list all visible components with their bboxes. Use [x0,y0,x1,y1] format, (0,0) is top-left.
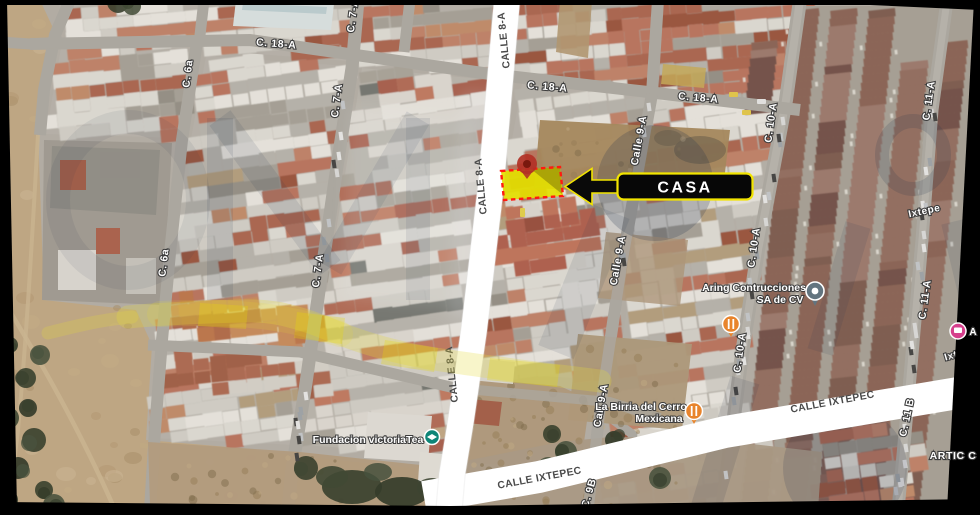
svg-text:SA de CV: SA de CV [757,294,804,306]
svg-text:Aring Contrucciones: Aring Contrucciones [702,282,806,294]
svg-text:CASA: CASA [657,180,712,197]
svg-text:Fundacion victoriaTea: Fundacion victoriaTea [313,434,424,446]
svg-text:ARTIC C: ARTIC C [930,450,977,462]
svg-text:Mexicana: Mexicana [635,413,682,425]
svg-text:La Birria del Cerro: La Birria del Cerro [595,401,687,413]
svg-text:A: A [969,327,976,338]
